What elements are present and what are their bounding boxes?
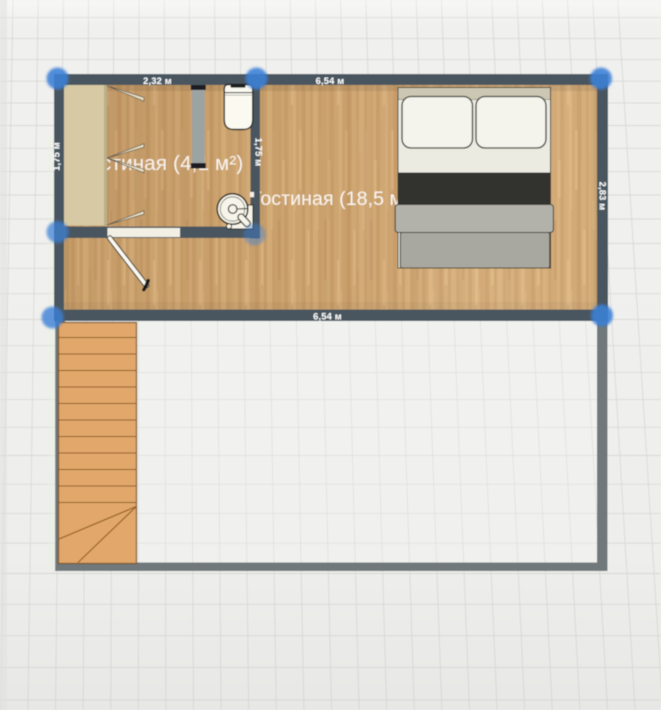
svg-text:6,54 м: 6,54 м xyxy=(313,312,342,322)
svg-text:1,75 м: 1,75 м xyxy=(52,142,62,171)
svg-text:Гостиная (18,5 м²): Гостиная (18,5 м²) xyxy=(251,188,416,210)
svg-text:6,54 м: 6,54 м xyxy=(316,76,345,86)
svg-text:2,83 м: 2,83 м xyxy=(598,182,608,211)
svg-text:1,75 м: 1,75 м xyxy=(254,138,264,167)
svg-text:2,32 м: 2,32 м xyxy=(143,76,172,86)
